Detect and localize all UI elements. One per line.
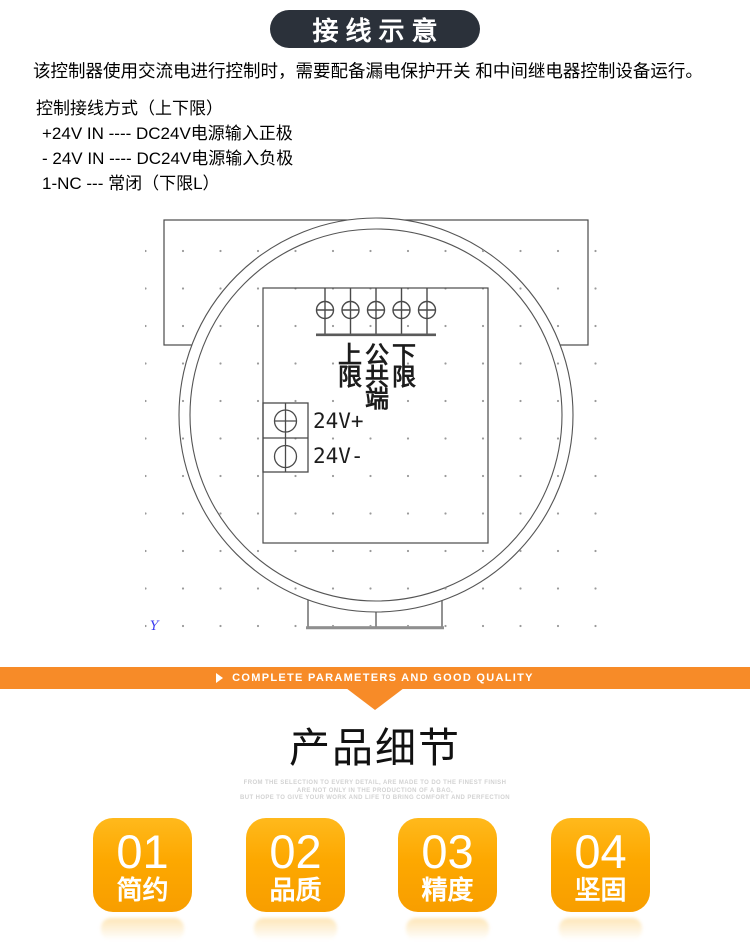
- badge-reflection: [406, 918, 489, 940]
- section-title-badge: 接线示意: [270, 10, 480, 48]
- quality-banner: COMPLETE PARAMETERS AND GOOD QUALITY: [0, 667, 750, 689]
- label-common-char: 端: [365, 386, 389, 413]
- feature-badge-02: 02 品质: [246, 818, 345, 912]
- arrow-icon: [216, 673, 223, 683]
- label-24v-minus: 24V-: [313, 444, 364, 468]
- feature-badge-03: 03 精度: [398, 818, 497, 912]
- label-upper-limit-char: 限: [338, 364, 362, 391]
- banner-pointer-triangle: [346, 688, 404, 710]
- grid-dots: [145, 230, 625, 635]
- details-subtitle: FROM THE SELECTION TO EVERY DETAIL, ARE …: [0, 780, 750, 803]
- details-subtitle-line: ARE NOT ONLY IN THE PRODUCTION OF A BAG,: [0, 788, 750, 796]
- wiring-line: 1-NC --- 常闭（下限L）: [36, 171, 293, 196]
- label-lower-limit-char: 限: [392, 364, 416, 391]
- label-24v-plus: 24V+: [313, 409, 364, 433]
- badge-label: 品质: [246, 876, 345, 904]
- details-title: 产品细节: [0, 714, 750, 774]
- details-subtitle-line: FROM THE SELECTION TO EVERY DETAIL, ARE …: [0, 780, 750, 788]
- feature-badges-row: 01 简约 02 品质 03 精度 04 坚固: [0, 818, 750, 948]
- badge-label: 简约: [93, 876, 192, 904]
- badge-number: 04: [551, 832, 650, 872]
- badge-label: 坚固: [551, 876, 650, 904]
- badge-reflection: [101, 918, 184, 940]
- feature-badge-01: 01 简约: [93, 818, 192, 912]
- product-detail-page: 接线示意 该控制器使用交流电进行控制时，需要配备漏电保护开关 和中间继电器控制设…: [0, 0, 750, 952]
- badge-number: 01: [93, 832, 192, 872]
- wiring-diagram: 上 限 公 共 端 下 限 24V+ 24V- Y: [0, 210, 750, 640]
- badge-number: 03: [398, 832, 497, 872]
- banner-text: COMPLETE PARAMETERS AND GOOD QUALITY: [232, 672, 534, 684]
- wiring-title: 控制接线方式（上下限）: [36, 96, 293, 121]
- badge-number: 02: [246, 832, 345, 872]
- badge-reflection: [254, 918, 337, 940]
- intro-paragraph: 该控制器使用交流电进行控制时，需要配备漏电保护开关 和中间继电器控制设备运行。: [33, 58, 733, 84]
- wiring-line: - 24V IN ---- DC24V电源输入负极: [36, 146, 293, 171]
- badge-reflection: [559, 918, 642, 940]
- wiring-line: +24V IN ---- DC24V电源输入正极: [36, 121, 293, 146]
- badge-label: 精度: [398, 876, 497, 904]
- details-subtitle-line: BUT HOPE TO GIVE YOUR WORK AND LIFE TO B…: [0, 795, 750, 803]
- feature-badge-04: 04 坚固: [551, 818, 650, 912]
- wiring-instructions: 控制接线方式（上下限） +24V IN ---- DC24V电源输入正极 - 2…: [36, 96, 293, 196]
- y-axis-marker: Y: [150, 619, 160, 634]
- section-title-text: 接线示意: [305, 11, 444, 48]
